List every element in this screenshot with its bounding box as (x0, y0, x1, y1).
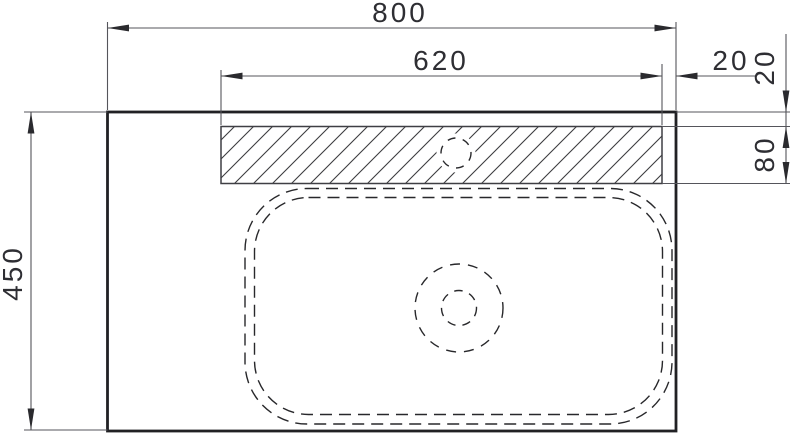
dimension-label-cutout-height: 80 (749, 135, 780, 172)
drawing-svg: 800 620 20 20 80 450 (0, 0, 791, 436)
dimension-label-overall-width: 800 (372, 0, 428, 28)
dimension-label-cutout-right-offset: 20 (712, 45, 749, 76)
faucet-hole-knockout (437, 134, 476, 173)
washbasin-technical-drawing: 800 620 20 20 80 450 (0, 0, 791, 436)
dimension-label-cutout-top-offset: 20 (749, 48, 780, 85)
dimension-label-overall-depth: 450 (0, 245, 28, 301)
dimension-label-cutout-width: 620 (413, 45, 469, 76)
